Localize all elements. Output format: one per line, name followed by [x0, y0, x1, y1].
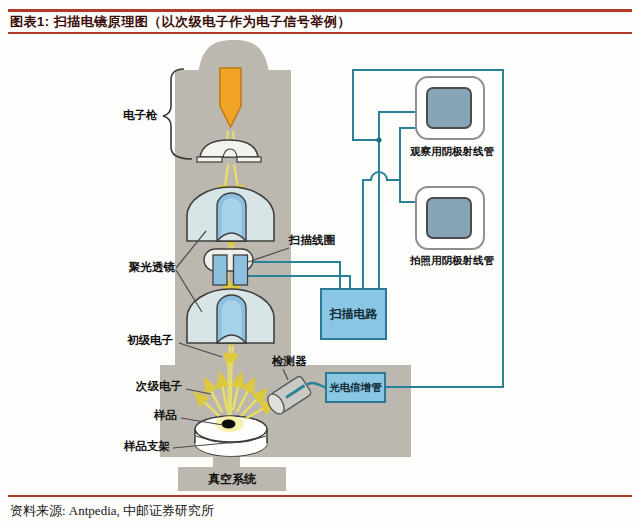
- report-figure: 图表1: 扫描电镜原理图（以次级电子作为电子信号举例）: [0, 0, 640, 526]
- crt-observe-label: 观察用阴极射线管: [406, 145, 498, 159]
- crt-photo: [415, 186, 485, 250]
- scan-circuit-label: 扫描电路: [330, 306, 378, 323]
- sem-schematic: [0, 0, 640, 526]
- condenser-lens-2: [187, 289, 274, 343]
- source-note: 资料来源: Antpedia, 中邮证券研究所: [10, 502, 214, 520]
- photomultiplier-label: 光电倍增管: [329, 381, 382, 395]
- condenser-lens-label: 聚光透镜: [129, 262, 175, 274]
- sample-dot: [222, 420, 236, 429]
- scan-coil-label: 扫描线圈: [289, 235, 335, 247]
- secondary-electrons-label: 次级电子: [136, 381, 182, 393]
- photomultiplier-box: 光电倍增管: [325, 372, 386, 403]
- footer-rule: [8, 495, 632, 497]
- crt-photo-label: 拍照用阴极射线管: [406, 254, 498, 268]
- crt-photo-screen: [426, 197, 472, 239]
- scan-circuit-box: 扫描电路: [320, 288, 387, 340]
- crt-observe: [415, 76, 485, 140]
- sample-holder-label: 样品支架: [124, 441, 170, 453]
- detector-label: 检测器: [272, 356, 307, 368]
- crt-observe-screen: [426, 87, 472, 129]
- condenser-lens-1: [187, 187, 274, 241]
- electron-gun-label: 电子枪: [123, 110, 158, 122]
- sample-label: 样品: [154, 410, 177, 422]
- vacuum-system-label: 真空系统: [178, 467, 286, 491]
- primary-electrons-label: 初级电子: [127, 335, 173, 347]
- wire-junction-dot: [376, 137, 381, 142]
